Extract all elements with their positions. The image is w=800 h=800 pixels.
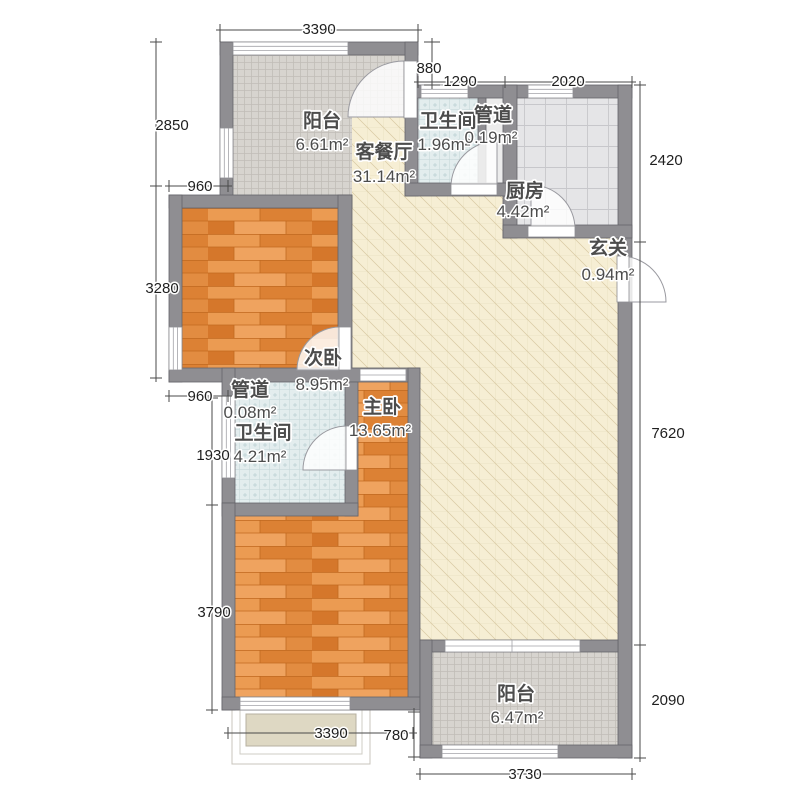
dim-right-7620: 7620 bbox=[651, 425, 684, 442]
room-name-bedroom-second: 次卧 bbox=[304, 346, 342, 369]
room-area-bedroom-master: 13.65m² bbox=[349, 421, 412, 440]
floorplan-svg: 3390 880 1290 2020 2420 7620 2090 2850 9… bbox=[0, 0, 800, 800]
dim-left-2850: 2850 bbox=[155, 117, 188, 134]
dim-right-2090: 2090 bbox=[651, 692, 684, 709]
room-area-living-dining: 31.14m² bbox=[353, 167, 416, 186]
bay-window bbox=[232, 710, 370, 764]
dim-bottom-3730: 3730 bbox=[508, 766, 541, 783]
room-name-duct-top: 管道 bbox=[474, 103, 512, 126]
dim-left-1930: 1930 bbox=[196, 447, 229, 464]
floorplan-page: 3390 880 1290 2020 2420 7620 2090 2850 9… bbox=[0, 0, 800, 800]
dim-bottom-3390: 3390 bbox=[314, 725, 347, 742]
room-area-bedroom-second: 8.95m² bbox=[296, 375, 349, 394]
window-balcony-bottom bbox=[442, 745, 558, 758]
dim-top-3390: 3390 bbox=[302, 21, 335, 38]
room-area-bath-mid: 4.21m² bbox=[234, 447, 287, 466]
room-area-entry: 0.94m² bbox=[582, 265, 635, 284]
window-bedroom-second bbox=[169, 327, 182, 370]
window-balcony-top bbox=[233, 42, 348, 55]
room-label-bath-mid: 卫生间 4.21m² bbox=[234, 421, 292, 466]
room-name-bath-mid: 卫生间 bbox=[234, 421, 291, 444]
dim-left-960-upper: 960 bbox=[187, 178, 212, 195]
room-name-living-dining: 客餐厅 bbox=[355, 140, 412, 163]
window-balcony-left bbox=[220, 128, 233, 178]
dim-top-880: 880 bbox=[416, 60, 441, 77]
dim-top-2020: 2020 bbox=[551, 73, 584, 90]
dim-left-3280: 3280 bbox=[145, 280, 178, 297]
dim-bottom-780: 780 bbox=[383, 727, 408, 744]
room-area-balcony-bottom: 6.47m² bbox=[491, 708, 544, 727]
window-bedroom-master bbox=[240, 697, 350, 710]
room-name-balcony-bottom: 阳台 bbox=[497, 682, 535, 705]
room-area-duct-top: 0.19m² bbox=[465, 128, 518, 147]
room-area-duct-mid: 0.08m² bbox=[224, 403, 277, 422]
dim-right-2420: 2420 bbox=[649, 152, 682, 169]
dim-top-1290: 1290 bbox=[443, 73, 476, 90]
room-label-duct-mid: 管道 0.08m² bbox=[224, 378, 277, 422]
room-area-balcony-top: 6.61m² bbox=[296, 135, 349, 154]
room-name-balcony-top: 阳台 bbox=[303, 109, 341, 132]
room-name-bedroom-master: 主卧 bbox=[363, 396, 401, 418]
room-name-kitchen: 厨房 bbox=[506, 179, 544, 202]
room-area-bath-top: 1.96m² bbox=[418, 135, 471, 154]
dim-left-960-lower: 960 bbox=[187, 388, 212, 405]
room-name-entry: 玄关 bbox=[589, 236, 627, 259]
room-name-duct-mid: 管道 bbox=[231, 378, 269, 401]
sliding-door-balcony-bottom bbox=[445, 640, 580, 652]
room-label-balcony-top: 阳台 6.61m² bbox=[296, 109, 349, 154]
dim-left-3790: 3790 bbox=[197, 604, 230, 621]
doorway-bedroom-master bbox=[360, 369, 406, 381]
room-area-kitchen: 4.42m² bbox=[497, 202, 550, 221]
